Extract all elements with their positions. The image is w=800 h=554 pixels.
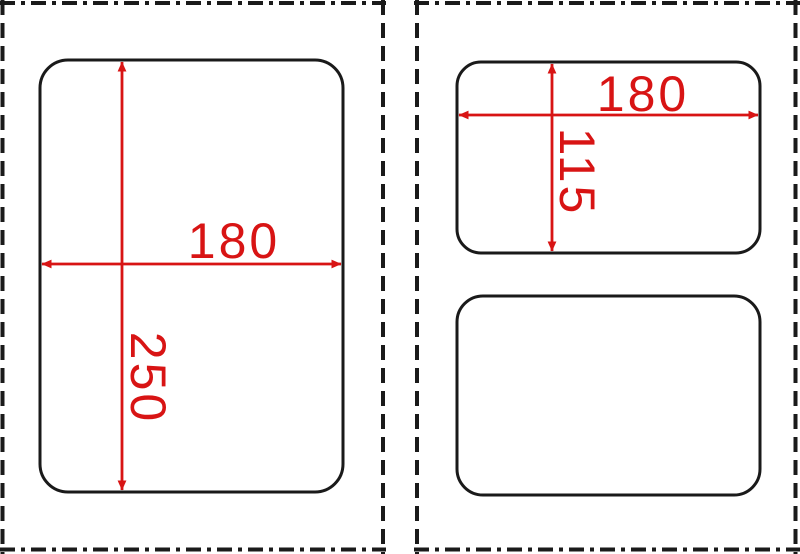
left-shape-height-label: 250: [120, 332, 176, 424]
right-top-shape-height-label: 115: [549, 128, 605, 217]
right-bottom-shape-outline: [457, 296, 760, 495]
right-top-shape-width-label: 180: [597, 66, 689, 122]
drawing-canvas: 180 250 180 115: [0, 0, 800, 554]
left-shape-outline: [40, 60, 343, 492]
technical-drawing: 180 250 180 115: [0, 0, 800, 554]
left-panel-border: [0, 0, 386, 554]
left-shape-width-label: 180: [188, 213, 280, 269]
